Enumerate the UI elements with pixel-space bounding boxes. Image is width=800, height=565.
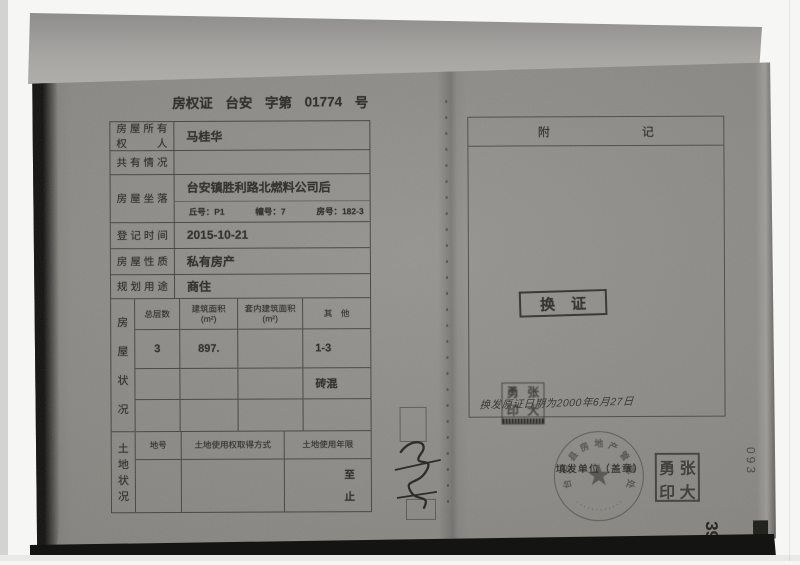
land-term-from: 至 [344,467,355,482]
house-status-header-row: 总层数 建筑面积(m²) 套内建筑面积(m²) 其 他 [135,298,370,329]
house-row2-cell1 [135,369,179,399]
house-status-row-1: 3 897. 1-3 [135,328,370,368]
house-status-block: 房 屋 状 况 总层数 建筑面积(m²) 套内建筑面积(m²) 其 他 3 89… [111,297,371,431]
room-number: 房号：182-3 [316,205,363,217]
page-right-edge [755,62,775,540]
land-status-char-3: 状 [118,472,129,488]
location-label: 房屋坐落 [117,191,168,206]
remarks-box: 附 记 [467,116,725,418]
registration-date-value: 2015-10-21 [175,222,370,248]
land-status-char-4: 况 [118,488,129,504]
header-inner-area-l1: 套内建筑面积 [245,303,296,314]
location-value-cell: 台安镇胜利路北燃料公司后 丘号：P1 幢号：7 房号：182-3 [175,174,370,222]
small-seal-barcode [503,418,544,423]
title-number: 01774 [305,94,343,109]
house-row2-cell2 [179,369,237,399]
remarks-header: 附 记 [468,117,723,147]
header-built-area-l2: (m²) [201,314,217,325]
row-house-nature: 房屋性质 私有房产 [111,247,370,275]
side-archive-number: 093 [744,446,758,476]
land-term-value: 至 止 [284,459,371,511]
location-address: 台安镇胜利路北燃料公司后 [175,174,370,201]
land-status-char-1: 土 [118,440,129,456]
registration-date-label-cell: 登记时间 [111,223,175,248]
built-area-value: 897. [179,330,237,368]
land-acquisition-value [181,460,284,512]
header-land-number: 地号 [136,432,181,459]
header-land-number-text: 地号 [150,440,167,451]
land-status-block: 土 地 状 况 地号 土地使用权取得方式 土地使用年限 至 止 [112,430,371,512]
header-total-floors-l1: 总层数 [144,309,170,320]
title-region: 台安 [225,92,252,112]
owner-label: 房屋所有权人 [116,121,167,151]
land-status-side-label: 土 地 状 况 [112,432,136,512]
land-term-to: 止 [344,489,355,504]
house-status-table: 总层数 建筑面积(m²) 套内建筑面积(m²) 其 他 3 897. 1-3 砖… [135,298,371,431]
certificate-table: 房屋所有权人 马桂华 共有情况 房屋坐落 台安镇胜利路北燃料公司后 丘号：P1 … [109,120,372,513]
header-other: 其 他 [302,298,370,328]
house-row2-cell3 [237,369,302,399]
name-seal-characters: 勇 张 印 大 [657,455,698,503]
planned-usage-value: 商住 [175,274,370,298]
house-status-row-3 [136,398,371,431]
header-built-area-l1: 建筑面积 [192,303,226,314]
owner-value: 马桂华 [174,121,369,150]
registration-date-label: 登记时间 [117,228,168,243]
planned-usage-label-cell: 规划用途 [111,275,175,298]
structure-value: 砖混 [302,368,370,398]
house-nature-label: 房屋性质 [117,254,168,269]
co-ownership-label: 共有情况 [116,155,167,170]
house-row3-cell2 [180,400,238,431]
row-location: 房屋坐落 台安镇胜利路北燃料公司后 丘号：P1 幢号：7 房号：182-3 [111,173,370,222]
issuer-unit-label: 填发单位（盖章） [556,460,644,475]
scan-right-seam [789,0,790,561]
row-registration-date: 登记时间 2015-10-21 [111,221,370,248]
land-status-header-row: 地号 土地使用权取得方式 土地使用年限 [136,431,371,459]
house-status-char-4: 况 [118,401,129,417]
zhang-dayong-name-seal: 勇 张 印 大 [655,453,700,502]
owner-label-cell: 房屋所有权人 [110,122,174,150]
header-inner-area: 套内建筑面积(m²) [237,299,302,329]
other-value-1: 1-3 [302,329,370,367]
land-status-table: 地号 土地使用权取得方式 土地使用年限 至 止 [136,431,371,512]
total-floors-value: 3 [135,330,179,368]
title-zidi: 字第 [265,91,292,111]
house-status-char-3: 状 [117,372,128,388]
header-land-acquisition: 土地使用权取得方式 [181,432,284,459]
header-inner-area-l2: (m²) [262,314,278,325]
spine-shadow [32,67,60,553]
house-status-side-label: 房 屋 状 况 [111,299,136,431]
location-label-cell: 房屋坐落 [111,175,175,222]
house-row3-cell3 [238,400,303,431]
exchange-char-2: 证 [571,292,587,313]
row-planned-usage: 规划用途 商住 [111,273,370,298]
title-name: 房权证 [172,92,213,112]
title-suffix: 号 [355,91,369,111]
row-owner: 房屋所有权人 马桂华 [110,121,369,150]
parcel-number: 丘号：P1 [189,206,225,218]
name-seal-char-3: 印 [659,479,675,503]
name-seal-char-4: 大 [680,479,696,503]
house-status-row-2: 砖混 [135,367,370,399]
house-nature-value: 私有房产 [175,248,370,275]
scan-left-strip [0,0,8,561]
certificate-exchange-stamp: 换 证 [519,289,608,318]
house-row3-cell4 [303,399,371,430]
house-status-char-2: 屋 [117,343,128,359]
land-status-value-row: 至 止 [136,458,371,512]
header-land-acquisition-text: 土地使用权取得方式 [194,440,271,451]
planned-usage-label: 规划用途 [117,279,168,294]
scan-bottom-strip [0,555,800,561]
house-nature-label-cell: 房屋性质 [111,249,175,275]
building-number: 幢号：7 [255,205,285,217]
house-row3-cell1 [136,400,180,431]
exchange-char-1: 换 [540,293,556,314]
margin-signature-scribble [391,436,445,512]
official-round-stamp: ★ 台安县房地产管理处············ [554,431,644,521]
land-status-char-2: 地 [118,456,129,472]
co-ownership-label-cell: 共有情况 [110,151,174,174]
header-land-term-text: 土地使用年限 [302,439,353,450]
location-sub-numbers: 丘号：P1 幢号：7 房号：182-3 [175,200,370,222]
name-seal-char-1: 勇 [659,455,675,479]
header-other-l1: 其 他 [324,308,350,319]
remarks-char-1: 附 [538,123,550,140]
header-built-area: 建筑面积(m²) [179,299,237,329]
remarks-char-2: 记 [642,122,654,139]
house-status-char-1: 房 [117,314,128,330]
land-number-value [136,460,181,512]
photocopied-certificate-sheet: 房权证 台安 字第 01774 号 房屋所有权人 马桂华 共有情况 房屋坐落 台… [0,0,800,563]
header-total-floors: 总层数 [135,299,179,329]
certificate-title: 房权证 台安 字第 01774 号 [172,93,368,110]
row-co-ownership: 共有情况 [110,149,369,174]
co-ownership-value [174,150,369,174]
header-land-term: 土地使用年限 [284,431,371,458]
name-seal-char-2: 张 [679,455,695,479]
inner-area-value [237,330,302,368]
